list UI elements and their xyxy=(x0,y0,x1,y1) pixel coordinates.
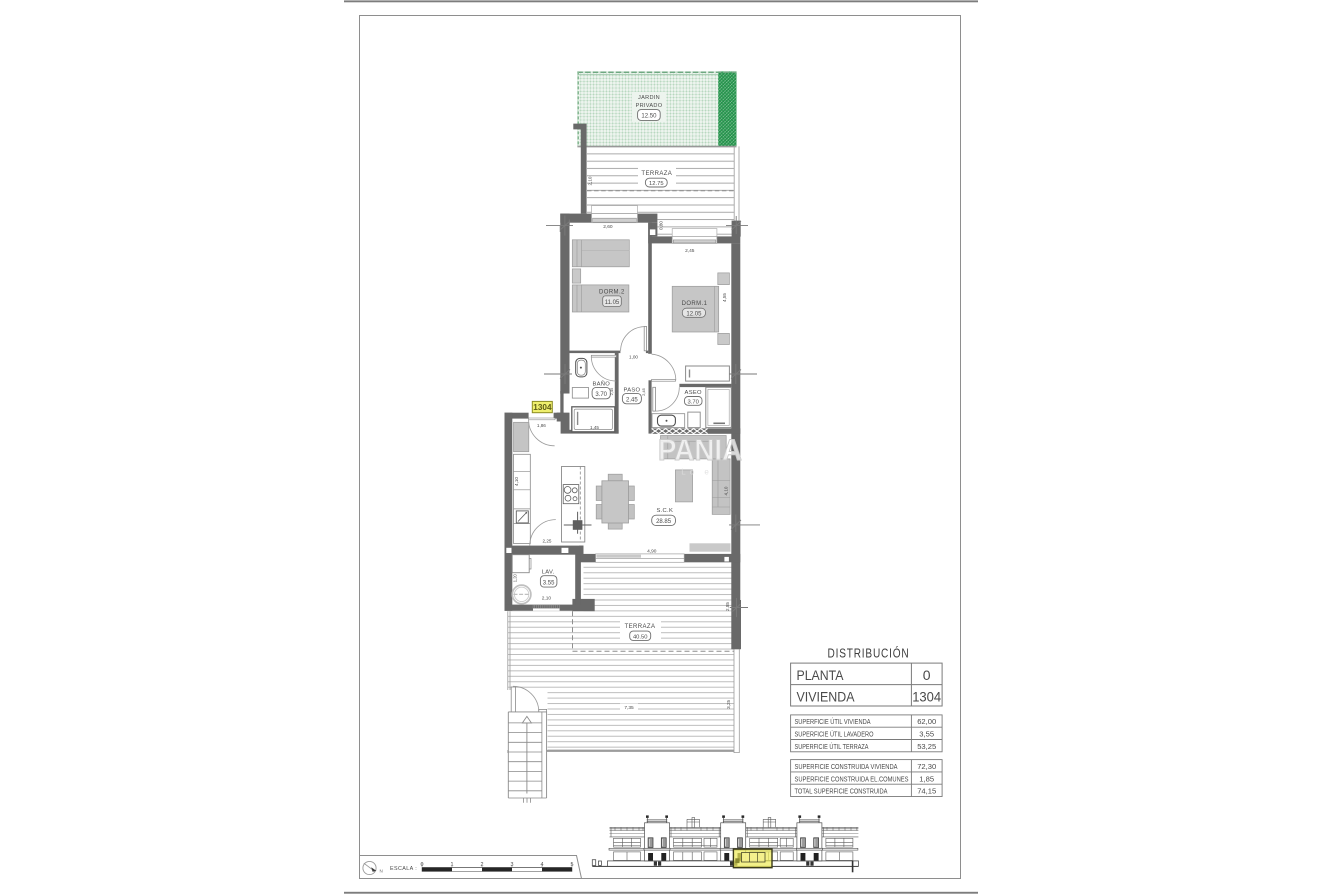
svg-text:SUPERFICIE ÚTIL TERRAZA: SUPERFICIE ÚTIL TERRAZA xyxy=(795,742,870,751)
svg-text:SUPERFICIE ÚTIL VIVIENDA: SUPERFICIE ÚTIL VIVIENDA xyxy=(795,717,872,726)
svg-text:PASO: PASO xyxy=(623,387,640,393)
svg-text:3,25: 3,25 xyxy=(726,699,731,708)
svg-text:S.C.K: S.C.K xyxy=(656,508,673,514)
svg-text:72,30: 72,30 xyxy=(917,762,936,771)
svg-text:BAÑO: BAÑO xyxy=(592,380,610,387)
svg-text:DORM.2: DORM.2 xyxy=(599,290,625,296)
svg-text:1,45: 1,45 xyxy=(590,425,599,430)
svg-text:4,10: 4,10 xyxy=(514,477,519,486)
svg-text:LAV.: LAV. xyxy=(542,569,555,575)
svg-text:53,25: 53,25 xyxy=(917,742,936,751)
svg-text:2,45: 2,45 xyxy=(685,248,695,254)
svg-text:4,90: 4,90 xyxy=(647,548,657,554)
svg-text:2,25: 2,25 xyxy=(543,539,552,544)
svg-text:3,55: 3,55 xyxy=(919,730,934,739)
svg-text:SUPERFICIE CONSTRUIDA EL.COMUN: SUPERFICIE CONSTRUIDA EL.COMUNES xyxy=(795,774,909,783)
svg-text:DISTRIBUCIÓN: DISTRIBUCIÓN xyxy=(828,646,910,661)
svg-text:TERRAZA: TERRAZA xyxy=(625,624,656,630)
svg-text:28.85: 28.85 xyxy=(656,519,672,525)
svg-text:SUPERFICIE CONSTRUIDA VIVIENDA: SUPERFICIE CONSTRUIDA VIVIENDA xyxy=(795,762,899,771)
svg-text:12.50: 12.50 xyxy=(641,114,657,120)
svg-text:TERRAZA: TERRAZA xyxy=(641,171,672,177)
svg-text:N: N xyxy=(380,869,383,874)
svg-text:ASEO: ASEO xyxy=(685,390,702,396)
svg-text:62,00: 62,00 xyxy=(917,717,936,726)
svg-text:PRIVADO: PRIVADO xyxy=(636,103,663,109)
svg-text:DORM.1: DORM.1 xyxy=(682,301,708,307)
svg-text:0: 0 xyxy=(923,667,931,683)
svg-text:0,80: 0,80 xyxy=(659,221,664,230)
svg-text:SUPERFICIE ÚTIL LAVADERO: SUPERFICIE ÚTIL LAVADERO xyxy=(795,730,874,739)
svg-text:7,35: 7,35 xyxy=(624,705,634,711)
svg-text:JARDIN: JARDIN xyxy=(638,95,660,101)
svg-text:Lo e: Lo e xyxy=(681,468,713,477)
svg-text:1,85: 1,85 xyxy=(919,774,934,783)
svg-text:12.75: 12.75 xyxy=(649,181,664,187)
svg-text:3.55: 3.55 xyxy=(543,580,555,586)
svg-text:11.05: 11.05 xyxy=(605,300,620,306)
svg-text:2.45: 2.45 xyxy=(626,397,638,403)
svg-text:TOTAL SUPERFICIE CONSTRUIDA: TOTAL SUPERFICIE CONSTRUIDA xyxy=(795,787,889,796)
svg-text:1,00: 1,00 xyxy=(629,354,638,359)
svg-text:4,10: 4,10 xyxy=(723,486,728,495)
svg-text:12.05: 12.05 xyxy=(686,311,702,317)
svg-text:2,45: 2,45 xyxy=(641,387,646,396)
svg-text:2,85: 2,85 xyxy=(725,602,730,611)
svg-text:PANIA: PANIA xyxy=(658,434,742,467)
svg-text:2,10: 2,10 xyxy=(588,176,593,185)
svg-text:PLANTA: PLANTA xyxy=(797,667,845,683)
svg-text:VIVIENDA: VIVIENDA xyxy=(797,689,856,705)
svg-text:1304: 1304 xyxy=(912,689,941,705)
svg-text:1,86: 1,86 xyxy=(537,423,546,428)
svg-text:2,60: 2,60 xyxy=(603,224,613,230)
svg-text:74,15: 74,15 xyxy=(917,787,936,796)
svg-text:1304: 1304 xyxy=(533,403,552,412)
svg-text:1,20: 1,20 xyxy=(513,573,518,582)
svg-text:40.50: 40.50 xyxy=(633,634,648,640)
svg-text:ESCALA :: ESCALA : xyxy=(390,866,417,872)
svg-text:2,45: 2,45 xyxy=(609,387,614,396)
svg-text:4,55: 4,55 xyxy=(722,293,727,302)
svg-text:3.70: 3.70 xyxy=(595,392,607,398)
svg-text:2,10: 2,10 xyxy=(542,596,552,602)
svg-text:3.70: 3.70 xyxy=(688,399,699,405)
